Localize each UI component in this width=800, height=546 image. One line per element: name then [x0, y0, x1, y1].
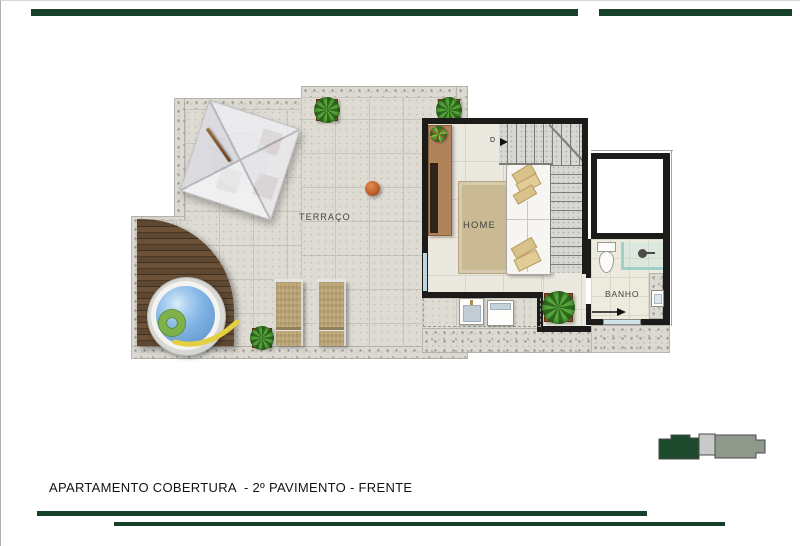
- shower-glass-line-v: [621, 242, 624, 269]
- locator-unit-highlight: [659, 435, 699, 459]
- top-rule-right: [599, 9, 792, 16]
- shower-arm: [646, 252, 655, 254]
- stairs-stringer: [499, 163, 552, 165]
- footer-rule-1: [37, 511, 647, 516]
- home-label: HOME: [463, 220, 496, 231]
- tub-bowl: [463, 305, 481, 322]
- closet-outer-line-top: [591, 150, 673, 151]
- washer-icon: [487, 300, 514, 326]
- closet-room: [597, 159, 663, 233]
- glass-door: [423, 253, 427, 291]
- bath-wall-left-upper: [586, 239, 591, 278]
- bath-wall-bottom-right: [641, 319, 670, 325]
- bath-label: BANHO: [605, 289, 639, 299]
- laundry-tub-icon: [459, 298, 484, 325]
- pool-noodle-icon: [161, 311, 246, 351]
- top-rule-left: [31, 9, 578, 16]
- footer-rule-2: [114, 522, 725, 526]
- sofa-seam: [507, 219, 549, 220]
- plant-icon: [316, 99, 338, 121]
- footer-title: APARTAMENTO COBERTURA - 2º PAVIMENTO - F…: [49, 480, 412, 495]
- home-wall-top: [422, 118, 588, 124]
- flower-pot-icon: [430, 126, 447, 142]
- tv-icon: [430, 163, 438, 233]
- granite-border-bottom-right: [591, 325, 670, 353]
- granite-border-left: [174, 98, 185, 220]
- door-label: D: [490, 137, 495, 144]
- stairs-lower-flight: [550, 165, 583, 273]
- bath-window: [603, 319, 641, 325]
- sink-bowl: [654, 294, 662, 304]
- tub-tap: [470, 300, 473, 305]
- terracotta-pot-icon: [365, 181, 380, 196]
- plant-icon: [252, 328, 272, 348]
- terrace-label: TERRAÇO: [299, 212, 351, 222]
- sink-icon: [651, 290, 664, 307]
- closet-outer-line-right: [671, 151, 672, 326]
- closet-wall-left: [591, 153, 597, 239]
- sun-lounger: [317, 281, 346, 346]
- locator-core: [699, 434, 715, 455]
- wall-step-horizontal: [537, 326, 591, 332]
- closet-wall-top: [591, 153, 670, 159]
- shower-glass-line-h: [621, 267, 663, 270]
- building-locator-icon: [651, 428, 771, 464]
- locator-unit-other: [715, 435, 765, 458]
- right-wall-outer: [663, 153, 670, 325]
- plant-icon: [544, 293, 573, 322]
- washer-panel: [490, 303, 511, 310]
- sun-lounger: [274, 281, 303, 346]
- floor-plan-page: D TERRAÇO HOME BANHO: [0, 0, 800, 546]
- bath-door-arrow-icon: [591, 307, 627, 317]
- bath-wall-bottom-left: [591, 319, 603, 325]
- door-arrow-icon: [500, 138, 508, 146]
